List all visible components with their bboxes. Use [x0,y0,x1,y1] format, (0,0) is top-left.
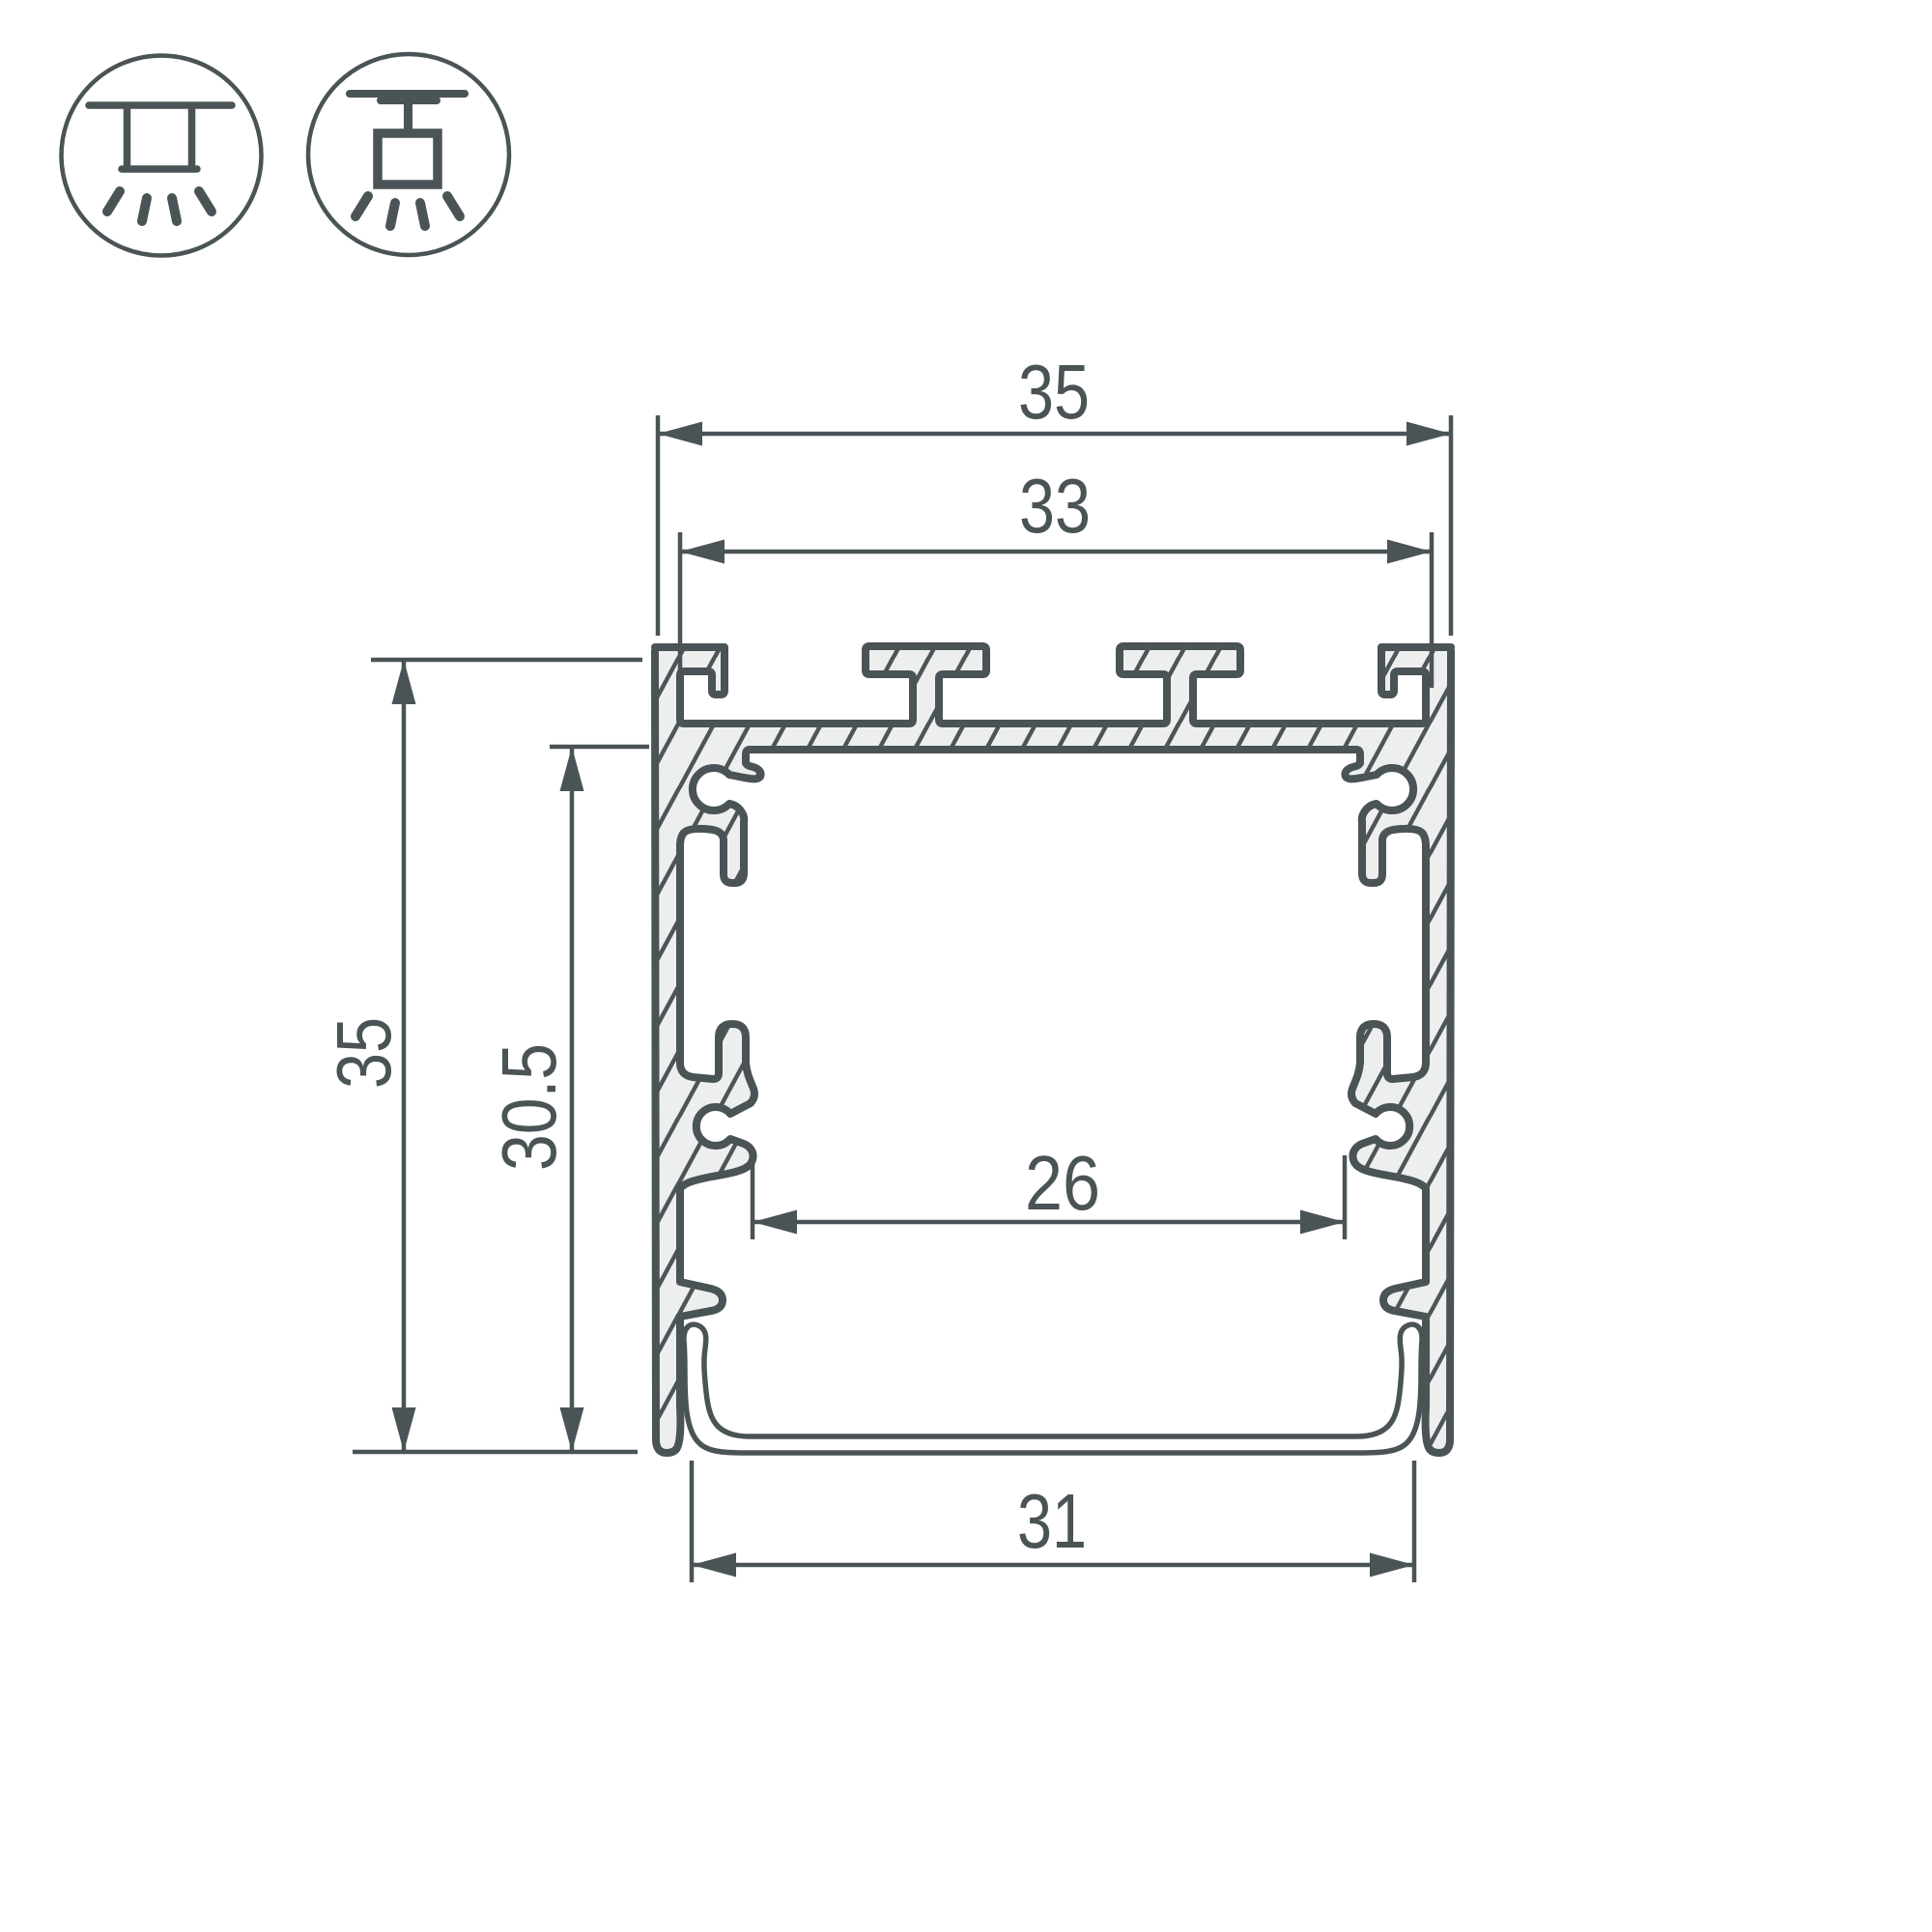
svg-text:26: 26 [1025,1140,1100,1226]
svg-text:35: 35 [321,1017,407,1089]
svg-text:33: 33 [1019,463,1091,549]
svg-text:31: 31 [1017,1478,1087,1564]
svg-text:35: 35 [1018,349,1090,435]
svg-text:30.5: 30.5 [486,1043,572,1171]
